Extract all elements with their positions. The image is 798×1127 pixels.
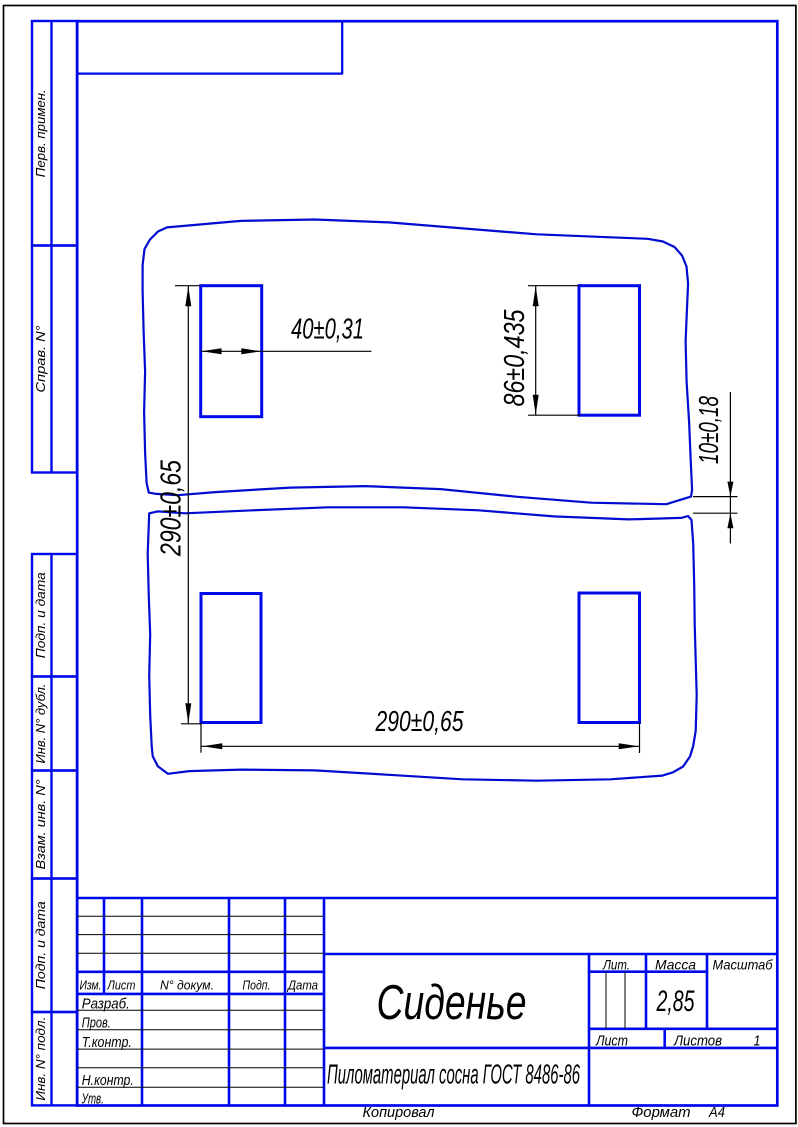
svg-text:N° докум.: N° докум. (160, 978, 214, 993)
svg-text:290±0,65: 290±0,65 (375, 706, 464, 738)
svg-text:Справ. N°: Справ. N° (33, 326, 48, 393)
svg-text:86±0,435: 86±0,435 (499, 309, 531, 407)
svg-text:Формат: Формат (632, 1104, 691, 1121)
svg-text:1: 1 (754, 1033, 761, 1050)
svg-text:Перв. примен.: Перв. примен. (33, 89, 48, 177)
svg-text:Масштаб: Масштаб (713, 957, 774, 973)
svg-text:Лист: Лист (107, 978, 136, 993)
svg-text:Сиденье: Сиденье (377, 976, 527, 1030)
svg-text:Пров.: Пров. (82, 1014, 111, 1031)
svg-text:290±0,65: 290±0,65 (156, 459, 188, 556)
svg-text:А4: А4 (708, 1104, 725, 1121)
svg-text:Изм.: Изм. (80, 978, 102, 993)
svg-text:2,85: 2,85 (656, 985, 695, 1018)
svg-text:Н.контр.: Н.контр. (82, 1072, 134, 1089)
svg-text:Лит.: Лит. (602, 957, 630, 973)
svg-text:Т.контр.: Т.контр. (82, 1034, 132, 1051)
svg-text:Дата: Дата (286, 978, 318, 993)
svg-text:40±0,31: 40±0,31 (291, 314, 364, 346)
svg-text:10±0,18: 10±0,18 (693, 396, 724, 464)
svg-text:Копировал: Копировал (363, 1104, 436, 1121)
svg-text:Разраб.: Разраб. (82, 995, 130, 1012)
svg-text:Утв.: Утв. (81, 1091, 104, 1108)
svg-text:Подп.: Подп. (243, 978, 271, 993)
svg-text:Инв. N° подл.: Инв. N° подл. (33, 1017, 48, 1101)
svg-text:Подп. и дата: Подп. и дата (33, 572, 48, 658)
svg-text:Инв. N° дубл.: Инв. N° дубл. (33, 684, 48, 764)
svg-text:Пиломатериал сосна ГОСТ 8486-: Пиломатериал сосна ГОСТ 8486-86 (327, 1059, 580, 1090)
svg-text:Подп. и дата: Подп. и дата (33, 901, 48, 989)
svg-text:Взам. инв. N°: Взам. инв. N° (33, 780, 48, 870)
svg-text:Масса: Масса (655, 957, 696, 973)
svg-text:Листов: Листов (673, 1033, 722, 1050)
svg-text:Лист: Лист (595, 1033, 628, 1050)
